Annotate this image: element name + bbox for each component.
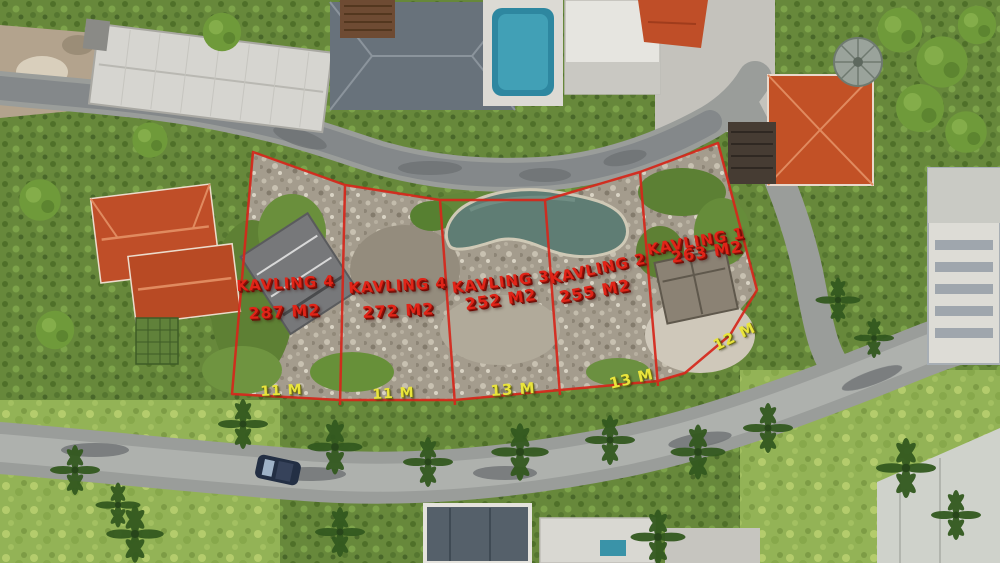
swimming-pool (483, 0, 563, 106)
gazebo-round (834, 38, 882, 86)
frontage-label-plot-3: 13 M (490, 381, 536, 399)
frontage-label-plot-4: 11 M (372, 386, 415, 402)
green-grid-structure (136, 318, 178, 364)
plot-4-area-label: 272 M2 (362, 301, 435, 321)
building-white-right (928, 168, 1000, 364)
plot-5-area-label: 287 M2 (248, 302, 321, 322)
aerial-photo-canvas: KAVLING 4 287 M2 KAVLING 4 272 M2 KAVLIN… (0, 0, 1000, 563)
frontage-label-plot-5: 11 M (260, 383, 303, 399)
